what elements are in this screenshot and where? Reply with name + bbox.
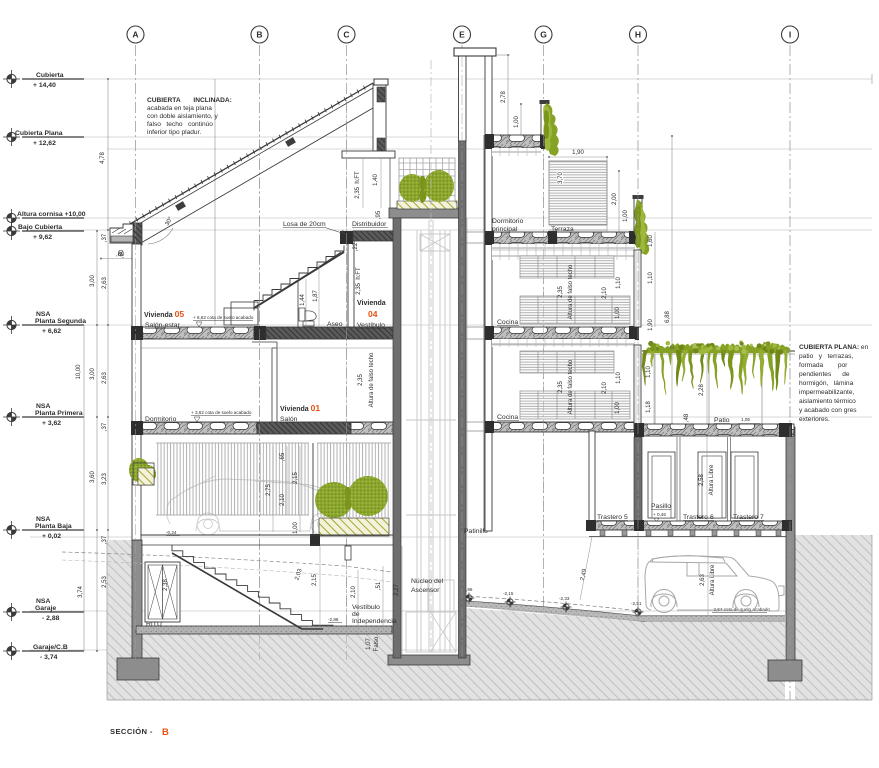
- svg-text:falso techo continúo: falso techo continúo: [147, 121, 213, 128]
- svg-text:inferior tipo pladur.: inferior tipo pladur.: [147, 129, 201, 136]
- svg-text:CUBIERTA PLANA: en: CUBIERTA PLANA: en: [799, 344, 869, 351]
- svg-text:Ascensor: Ascensor: [411, 587, 440, 594]
- svg-text:2,15: 2,15: [312, 574, 318, 586]
- svg-text:formada por: formada por: [799, 362, 848, 369]
- svg-text:+ 3,62 cota de suelo acabado: + 3,62 cota de suelo acabado: [191, 410, 252, 415]
- svg-text:de: de: [352, 611, 360, 618]
- svg-text:2,10: 2,10: [602, 287, 608, 299]
- svg-text:Dormitorio: Dormitorio: [145, 416, 177, 423]
- svg-text:1,87: 1,87: [313, 290, 319, 302]
- svg-text:A: A: [132, 30, 138, 40]
- svg-text:2,28: 2,28: [699, 384, 705, 396]
- svg-text:Bajo Cubierta: Bajo Cubierta: [18, 224, 62, 231]
- svg-text:3,70: 3,70: [558, 172, 564, 184]
- svg-text:1,05: 1,05: [741, 417, 750, 422]
- svg-text:Cubierta Plana: Cubierta Plana: [15, 130, 63, 137]
- svg-text:,48: ,48: [684, 413, 690, 422]
- svg-text:-2,15: -2,15: [503, 591, 514, 596]
- svg-text:patio y terrazas,: patio y terrazas,: [799, 353, 853, 360]
- svg-text:H: H: [635, 30, 641, 40]
- svg-text:1,10: 1,10: [646, 366, 652, 378]
- svg-text:pendientes de: pendientes de: [799, 371, 850, 378]
- svg-text:con doble aislamiento, y: con doble aislamiento, y: [147, 113, 218, 120]
- svg-text:+ 9,62: + 9,62: [33, 234, 52, 241]
- svg-text:2,35: 2,35: [558, 381, 564, 393]
- svg-text:1,44: 1,44: [300, 294, 306, 306]
- svg-text:RITU: RITU: [146, 621, 162, 628]
- svg-text:2,35 h:FT: 2,35 h:FT: [355, 171, 361, 199]
- svg-text:NSA: NSA: [36, 403, 50, 410]
- svg-text:,60: ,60: [116, 252, 125, 258]
- svg-text:NSA: NSA: [36, 516, 50, 523]
- svg-text:,51: ,51: [376, 581, 382, 590]
- svg-text:Distribuidor: Distribuidor: [352, 221, 387, 228]
- svg-text:1,90: 1,90: [648, 319, 654, 331]
- svg-text:B: B: [256, 30, 262, 40]
- svg-text:,22: ,22: [353, 242, 359, 251]
- svg-text:Aseo: Aseo: [327, 321, 343, 328]
- svg-text:aislamiento térmico: aislamiento térmico: [799, 398, 856, 405]
- svg-text:2,63: 2,63: [102, 372, 108, 384]
- svg-text:3,60: 3,60: [90, 471, 96, 483]
- svg-text:10,00: 10,00: [76, 364, 82, 380]
- svg-text:1,10: 1,10: [648, 272, 654, 284]
- svg-text:2,35: 2,35: [558, 286, 564, 298]
- svg-text:Altura de falso techo: Altura de falso techo: [369, 352, 375, 407]
- svg-text:Altura cornisa +10,00: Altura cornisa +10,00: [17, 211, 86, 218]
- svg-text:1,40: 1,40: [373, 174, 379, 186]
- svg-text:Vivienda: Vivienda: [357, 300, 386, 307]
- svg-text:NSA: NSA: [36, 311, 50, 318]
- svg-text:-0,24: -0,24: [166, 530, 177, 535]
- svg-text:Núcleo del: Núcleo del: [411, 578, 444, 585]
- svg-text:6,88: 6,88: [665, 311, 671, 323]
- svg-text:1,00: 1,00: [293, 522, 299, 534]
- svg-text:SECCIÓN -: SECCIÓN -: [110, 727, 153, 736]
- svg-text:Planta Primera: Planta Primera: [35, 410, 83, 417]
- svg-text:impermeabilizante,: impermeabilizante,: [799, 389, 855, 396]
- svg-text:NSA: NSA: [36, 598, 50, 605]
- svg-text:CUBIERTA INCLINADA:: CUBIERTA INCLINADA:: [147, 97, 232, 104]
- svg-text:3,23: 3,23: [102, 473, 108, 485]
- svg-text:+ 3,62: + 3,62: [42, 420, 61, 427]
- svg-text:1,60: 1,60: [648, 235, 654, 247]
- svg-text:B: B: [162, 727, 169, 738]
- svg-text:+ 14,40: + 14,40: [33, 82, 56, 89]
- svg-text:hormigón, lámina: hormigón, lámina: [799, 380, 854, 387]
- svg-text:Planta Segunda: Planta Segunda: [35, 318, 86, 325]
- svg-text:Vestíbulo: Vestíbulo: [357, 322, 385, 329]
- svg-text:Independencia: Independencia: [352, 618, 397, 625]
- svg-text:Cubierta: Cubierta: [36, 72, 64, 79]
- svg-text:-2,33: -2,33: [559, 596, 570, 601]
- svg-text:2,15: 2,15: [293, 472, 299, 484]
- svg-text:Dormitorio: Dormitorio: [492, 218, 524, 225]
- svg-text:,65: ,65: [280, 452, 286, 461]
- svg-text:Losa de 20cm: Losa de 20cm: [283, 221, 326, 228]
- svg-text:+ 12,62: + 12,62: [33, 140, 56, 147]
- svg-text:Altura Libre: Altura Libre: [709, 464, 715, 495]
- svg-text:1,90: 1,90: [572, 150, 584, 156]
- svg-text:2,10: 2,10: [280, 494, 286, 506]
- svg-text:I: I: [789, 30, 791, 40]
- svg-text:,37: ,37: [102, 233, 108, 242]
- svg-text:1,07: 1,07: [366, 638, 372, 650]
- svg-text:1,00: 1,00: [615, 307, 621, 319]
- svg-text:2,78: 2,78: [501, 91, 507, 103]
- svg-text:-2,51: -2,51: [631, 601, 642, 606]
- svg-text:E: E: [459, 30, 465, 40]
- svg-text:-2,88: -2,88: [328, 617, 339, 622]
- svg-text:Salón-estar: Salón-estar: [145, 322, 180, 329]
- svg-text:1,00: 1,00: [623, 210, 629, 222]
- svg-text:Trastero 7: Trastero 7: [733, 514, 764, 521]
- svg-text:C: C: [343, 30, 349, 40]
- svg-text:2,35 h:FT: 2,35 h:FT: [356, 267, 362, 295]
- svg-text:3,00: 3,00: [90, 368, 96, 380]
- svg-text:Salón: Salón: [280, 416, 298, 423]
- svg-text:- 2,88: - 2,88: [42, 615, 60, 622]
- svg-text:,37: ,37: [102, 422, 108, 431]
- svg-text:1,18: 1,18: [646, 401, 652, 413]
- svg-text:+ 6,62: + 6,62: [42, 328, 61, 335]
- svg-text:Patio: Patio: [714, 417, 730, 424]
- svg-text:2,10: 2,10: [602, 382, 608, 394]
- svg-text:2,58: 2,58: [699, 474, 705, 486]
- svg-text:Altura Libre: Altura Libre: [710, 564, 716, 595]
- svg-text:2,27: 2,27: [394, 584, 400, 596]
- svg-text:1,00: 1,00: [615, 402, 621, 414]
- svg-text:- 3,74: - 3,74: [40, 654, 58, 661]
- svg-text:Falso: Falso: [374, 636, 380, 651]
- svg-text:2,10: 2,10: [351, 586, 357, 598]
- svg-text:Vestíbulo: Vestíbulo: [352, 604, 380, 611]
- svg-text:1,00: 1,00: [514, 116, 520, 128]
- svg-text:acabada en teja plana: acabada en teja plana: [147, 105, 212, 112]
- svg-text:3,00: 3,00: [90, 275, 96, 287]
- svg-text:+ 6,62 cota de suelo acabado: + 6,62 cota de suelo acabado: [193, 315, 254, 320]
- svg-text:,95: ,95: [376, 210, 382, 219]
- svg-text:2,00: 2,00: [612, 193, 618, 205]
- svg-text:3,74: 3,74: [78, 586, 84, 598]
- svg-text:Garaje/C.B: Garaje/C.B: [33, 644, 68, 651]
- svg-text:04: 04: [368, 309, 378, 319]
- svg-text:Cocina: Cocina: [497, 414, 518, 421]
- svg-text:Patinillo: Patinillo: [464, 528, 488, 535]
- svg-text:2,63: 2,63: [102, 277, 108, 289]
- svg-text:Pasillo: Pasillo: [651, 503, 671, 510]
- svg-text:2,75: 2,75: [266, 484, 272, 496]
- svg-text:+ 0,02: + 0,02: [42, 533, 61, 540]
- svg-text:2,63: 2,63: [700, 574, 706, 586]
- svg-text:Trastero 6: Trastero 6: [683, 514, 714, 521]
- svg-text:Planta Baja: Planta Baja: [35, 523, 72, 530]
- svg-text:Altura de falso techo: Altura de falso techo: [568, 264, 574, 319]
- svg-text:1,10: 1,10: [616, 372, 622, 384]
- svg-text:Altura de falso techo: Altura de falso techo: [568, 359, 574, 414]
- svg-text:+ 0,46: + 0,46: [653, 512, 666, 517]
- svg-text:4,78: 4,78: [100, 152, 106, 164]
- svg-text:exteriores.: exteriores.: [799, 416, 830, 423]
- svg-text:y acabado con gres: y acabado con gres: [799, 407, 857, 414]
- svg-text:2,35: 2,35: [358, 374, 364, 386]
- svg-text:Trastero 5: Trastero 5: [597, 514, 628, 521]
- svg-text:2,38: 2,38: [163, 579, 169, 591]
- svg-text:Garaje: Garaje: [35, 605, 56, 612]
- svg-text:Cocina: Cocina: [497, 319, 518, 326]
- svg-text:G: G: [540, 30, 547, 40]
- svg-text:1,10: 1,10: [616, 277, 622, 289]
